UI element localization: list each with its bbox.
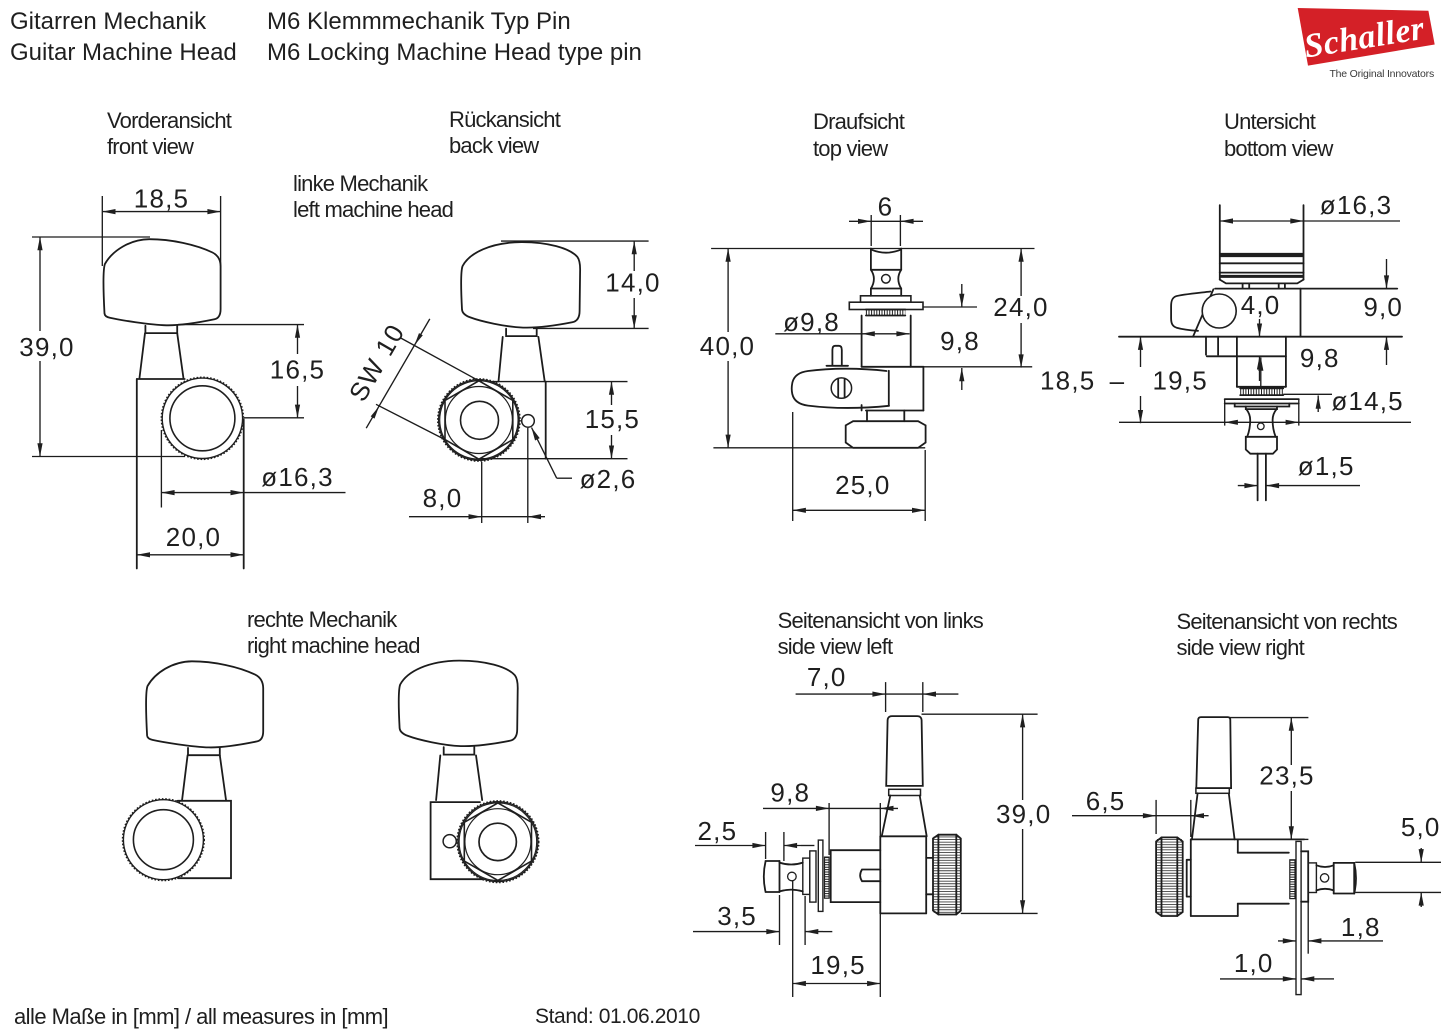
- svg-text:Stand: 01.06.2010: Stand: 01.06.2010: [535, 1005, 700, 1028]
- svg-text:9,8: 9,8: [940, 326, 980, 356]
- svg-text:6,5: 6,5: [1086, 786, 1126, 816]
- svg-text:2,5: 2,5: [698, 816, 738, 846]
- svg-text:M6 Locking Machine Head type p: M6 Locking Machine Head type pin: [267, 39, 642, 66]
- svg-text:ø9,8: ø9,8: [783, 307, 840, 337]
- svg-text:right machine head: right machine head: [247, 633, 420, 658]
- svg-text:9,0: 9,0: [1363, 292, 1403, 322]
- svg-text:25,0: 25,0: [835, 470, 890, 500]
- svg-text:15,5: 15,5: [585, 404, 640, 434]
- svg-text:side view right: side view right: [1177, 635, 1305, 660]
- svg-text:9,8: 9,8: [770, 778, 810, 808]
- svg-text:3,5: 3,5: [717, 901, 757, 931]
- svg-text:bottom view: bottom view: [1224, 136, 1333, 161]
- svg-text:1,0: 1,0: [1234, 948, 1274, 978]
- svg-text:Seitenansicht von rechts: Seitenansicht von rechts: [1177, 609, 1398, 634]
- svg-text:top view: top view: [813, 136, 888, 161]
- svg-text:16,5: 16,5: [270, 355, 325, 385]
- svg-text:5,0: 5,0: [1401, 812, 1441, 842]
- svg-text:side view left: side view left: [778, 634, 893, 659]
- svg-text:23,5: 23,5: [1259, 761, 1314, 791]
- svg-text:Vorderansicht: Vorderansicht: [107, 108, 232, 133]
- svg-text:The Original Innovators: The Original Innovators: [1329, 68, 1434, 80]
- svg-text:ø14,5: ø14,5: [1331, 386, 1404, 416]
- svg-text:24,0: 24,0: [993, 292, 1048, 322]
- svg-text:20,0: 20,0: [166, 522, 221, 552]
- svg-text:1,8: 1,8: [1341, 912, 1381, 942]
- svg-text:ø16,3: ø16,3: [1320, 190, 1393, 220]
- svg-text:front view: front view: [107, 134, 194, 159]
- svg-text:back view: back view: [449, 133, 539, 158]
- svg-text:39,0: 39,0: [19, 332, 74, 362]
- svg-text:18,5 – 19,5: 18,5 – 19,5: [1040, 366, 1208, 396]
- svg-text:ø2,6: ø2,6: [580, 464, 637, 494]
- svg-text:Gitarren Mechanik: Gitarren Mechanik: [10, 8, 207, 35]
- svg-text:6: 6: [878, 192, 894, 222]
- svg-text:9,8: 9,8: [1300, 343, 1340, 373]
- svg-text:ø16,3: ø16,3: [261, 462, 334, 492]
- svg-text:Draufsicht: Draufsicht: [813, 109, 905, 134]
- svg-text:rechte Mechanik: rechte Mechanik: [247, 607, 398, 632]
- svg-text:8,0: 8,0: [423, 483, 463, 513]
- svg-text:left machine head: left machine head: [293, 197, 453, 222]
- svg-text:4,0: 4,0: [1241, 290, 1281, 320]
- svg-text:linke Mechanik: linke Mechanik: [293, 171, 429, 196]
- svg-text:Rückansicht: Rückansicht: [449, 107, 561, 132]
- svg-text:40,0: 40,0: [700, 331, 755, 361]
- svg-text:ø1,5: ø1,5: [1298, 451, 1355, 481]
- svg-text:19,5: 19,5: [810, 950, 865, 980]
- svg-text:Untersicht: Untersicht: [1224, 109, 1316, 134]
- svg-text:7,0: 7,0: [807, 662, 847, 692]
- svg-text:M6 Klemmmechanik Typ Pin: M6 Klemmmechanik Typ Pin: [267, 8, 571, 35]
- svg-text:alle Maße in [mm] / all measur: alle Maße in [mm] / all measures in [mm]: [14, 1004, 388, 1029]
- svg-text:39,0: 39,0: [996, 799, 1051, 829]
- svg-text:Seitenansicht von links: Seitenansicht von links: [778, 608, 984, 633]
- svg-text:Guitar Machine Head: Guitar Machine Head: [10, 39, 237, 66]
- svg-text:18,5: 18,5: [134, 184, 189, 214]
- svg-text:14,0: 14,0: [605, 268, 660, 298]
